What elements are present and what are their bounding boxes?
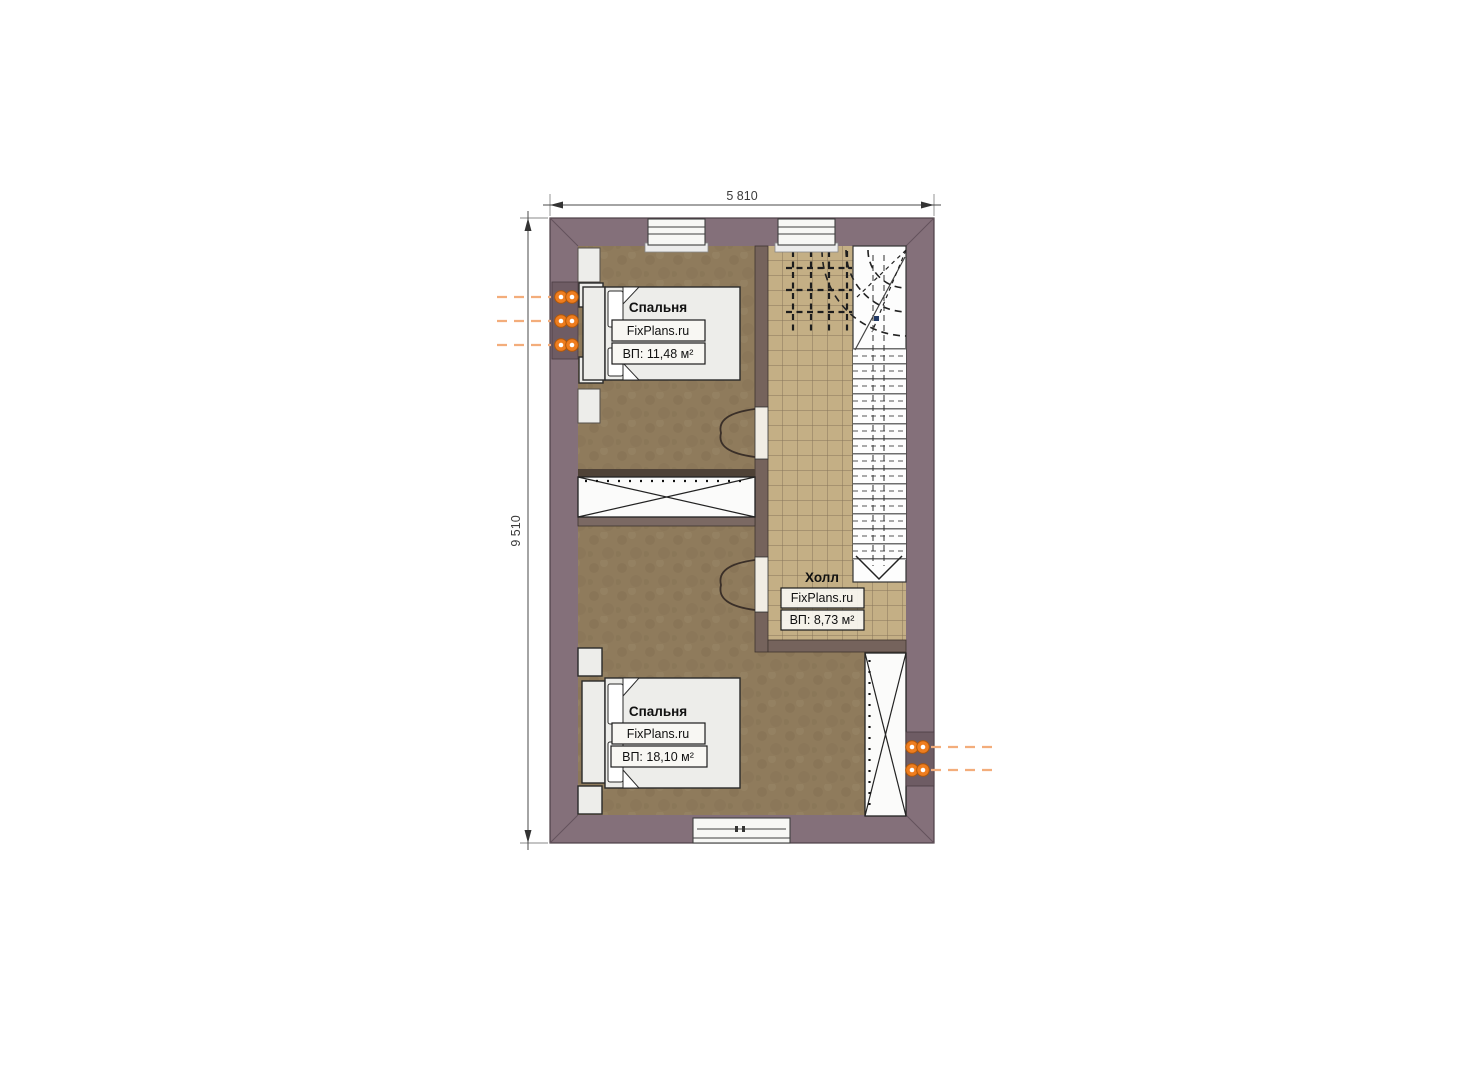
closet-icon-middle [578, 477, 755, 517]
dim-arrow-top [525, 218, 532, 231]
dim-arrow-left [550, 202, 563, 209]
nightstand-icon [578, 786, 602, 814]
radiator-leader-lines [497, 297, 551, 345]
nightstand-icon [578, 648, 602, 676]
radiators-left [497, 282, 578, 359]
window-icon-top-right [775, 219, 838, 252]
room-name: Спальня [629, 300, 687, 315]
dimension-height: 9 510 [509, 211, 548, 850]
floor-plan-canvas: 5 810 9 510 [0, 0, 1473, 1080]
dimension-width: 5 810 [543, 189, 941, 216]
window-icon-top-left [645, 219, 708, 252]
dresser-icon [578, 389, 600, 423]
pillow-icon [608, 684, 623, 724]
room-area: ВП: 18,10 м² [622, 750, 694, 764]
room-area: ВП: 11,48 м² [623, 347, 694, 361]
radiators-right [906, 732, 992, 786]
brand-watermark: FixPlans.ru [791, 591, 854, 605]
dim-arrow-bottom [525, 830, 532, 843]
bed-headboard [583, 287, 605, 380]
wall-cabinet [578, 248, 600, 282]
window-icon-bottom [693, 818, 790, 843]
stair-newel-post [874, 316, 879, 321]
dimension-height-label: 9 510 [509, 515, 523, 546]
brand-watermark: FixPlans.ru [627, 727, 690, 741]
bed-headboard [582, 681, 605, 783]
wardrobe-icon-right [865, 653, 906, 816]
brand-watermark: FixPlans.ru [627, 324, 690, 338]
radiator-leader-lines [931, 747, 992, 770]
room-name: Спальня [629, 704, 687, 719]
dim-arrow-right [921, 202, 934, 209]
room-name: Холл [805, 570, 839, 585]
floor-plan: 5 810 9 510 [0, 0, 1473, 1080]
dimension-width-label: 5 810 [726, 189, 757, 203]
room-area: ВП: 8,73 м² [790, 613, 855, 627]
